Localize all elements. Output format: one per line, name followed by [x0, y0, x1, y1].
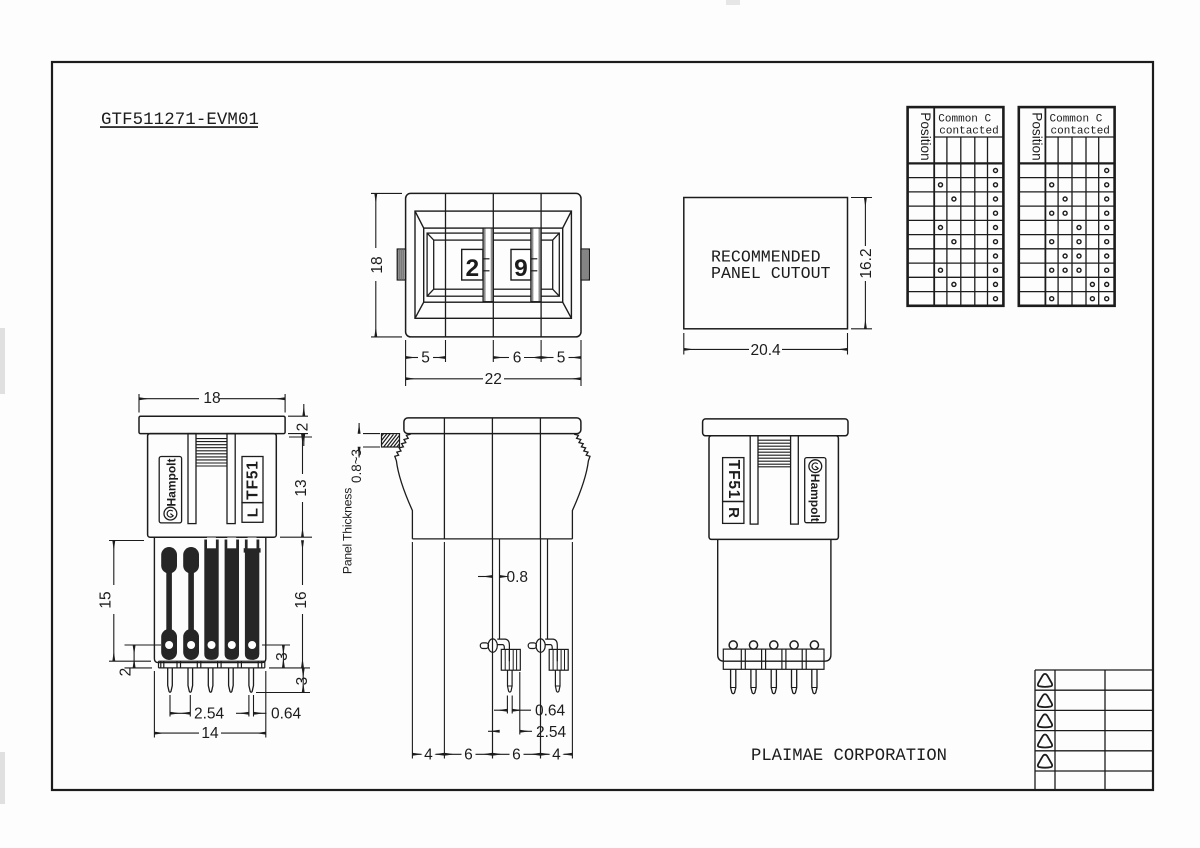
svg-text:9: 9: [514, 255, 528, 282]
svg-text:0.8~3: 0.8~3: [349, 449, 364, 483]
svg-text:18: 18: [203, 390, 220, 407]
svg-text:2.54: 2.54: [194, 706, 225, 723]
svg-text:13: 13: [293, 479, 310, 496]
svg-text:16: 16: [293, 591, 310, 608]
svg-text:2: 2: [294, 423, 311, 432]
svg-text:3: 3: [274, 652, 291, 661]
svg-text:6: 6: [464, 746, 473, 763]
svg-text:Common C: Common C: [1050, 113, 1103, 125]
svg-text:16.2: 16.2: [858, 248, 875, 278]
svg-text:Position: Position: [1029, 112, 1044, 160]
svg-text:contacted: contacted: [939, 125, 998, 137]
svg-text:18: 18: [369, 256, 386, 273]
svg-text:2.54: 2.54: [536, 724, 567, 741]
svg-text:L: L: [245, 508, 262, 517]
svg-text:20.4: 20.4: [751, 342, 782, 359]
svg-text:Common C: Common C: [938, 113, 991, 125]
svg-text:Panel Thickness: Panel Thickness: [341, 488, 355, 574]
svg-text:TF51: TF51: [725, 460, 742, 499]
svg-text:Hampolt: Hampolt: [808, 474, 822, 522]
svg-text:6: 6: [513, 350, 522, 367]
svg-text:3: 3: [294, 677, 311, 686]
svg-text:R: R: [725, 507, 742, 518]
svg-text:2: 2: [118, 668, 135, 677]
svg-text:contacted: contacted: [1051, 125, 1110, 137]
svg-text:TF51: TF51: [245, 460, 262, 499]
svg-text:4: 4: [424, 746, 433, 763]
svg-text:0.64: 0.64: [535, 703, 566, 720]
svg-text:22: 22: [485, 371, 502, 388]
svg-text:6: 6: [512, 746, 521, 763]
svg-text:5: 5: [557, 350, 566, 367]
svg-text:Hampolt: Hampolt: [164, 458, 178, 506]
svg-text:15: 15: [97, 591, 114, 608]
svg-text:0.8: 0.8: [507, 569, 529, 586]
svg-text:2: 2: [465, 255, 479, 282]
svg-text:Position: Position: [918, 112, 933, 160]
svg-text:14: 14: [201, 725, 219, 742]
svg-text:4: 4: [552, 746, 561, 763]
svg-text:5: 5: [421, 350, 430, 367]
svg-text:PANEL CUTOUT: PANEL CUTOUT: [711, 264, 831, 283]
svg-text:PLAIMAE CORPORATION: PLAIMAE CORPORATION: [751, 747, 947, 766]
svg-text:0.64: 0.64: [271, 706, 302, 723]
